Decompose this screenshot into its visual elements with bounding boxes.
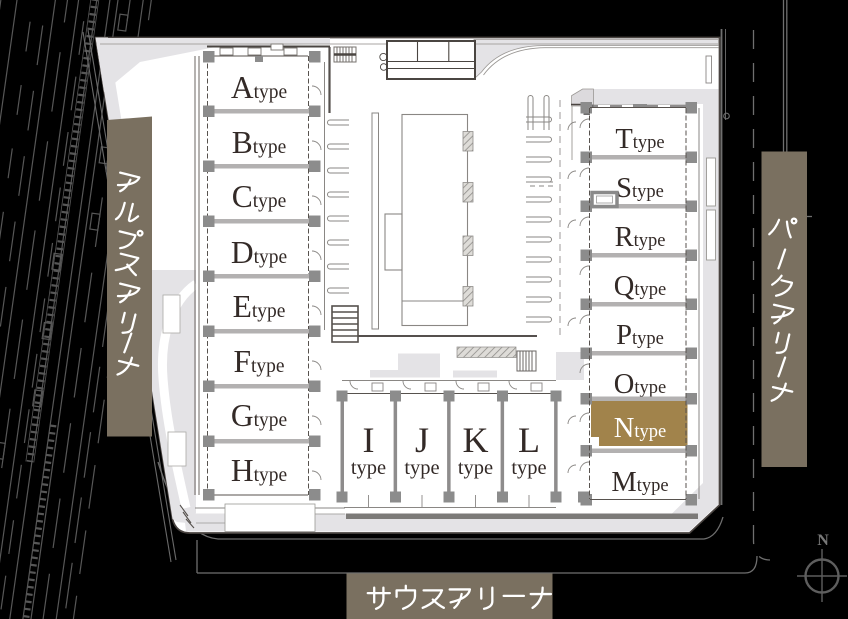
svg-text:type: type xyxy=(404,457,439,479)
svg-text:J: J xyxy=(415,420,429,460)
svg-text:I: I xyxy=(363,420,375,460)
svg-text:N: N xyxy=(817,532,829,549)
svg-text:K: K xyxy=(463,420,489,460)
svg-text:type: type xyxy=(351,457,386,479)
svg-text:L: L xyxy=(518,420,540,460)
svg-text:type: type xyxy=(458,457,493,479)
svg-text:type: type xyxy=(511,457,546,479)
